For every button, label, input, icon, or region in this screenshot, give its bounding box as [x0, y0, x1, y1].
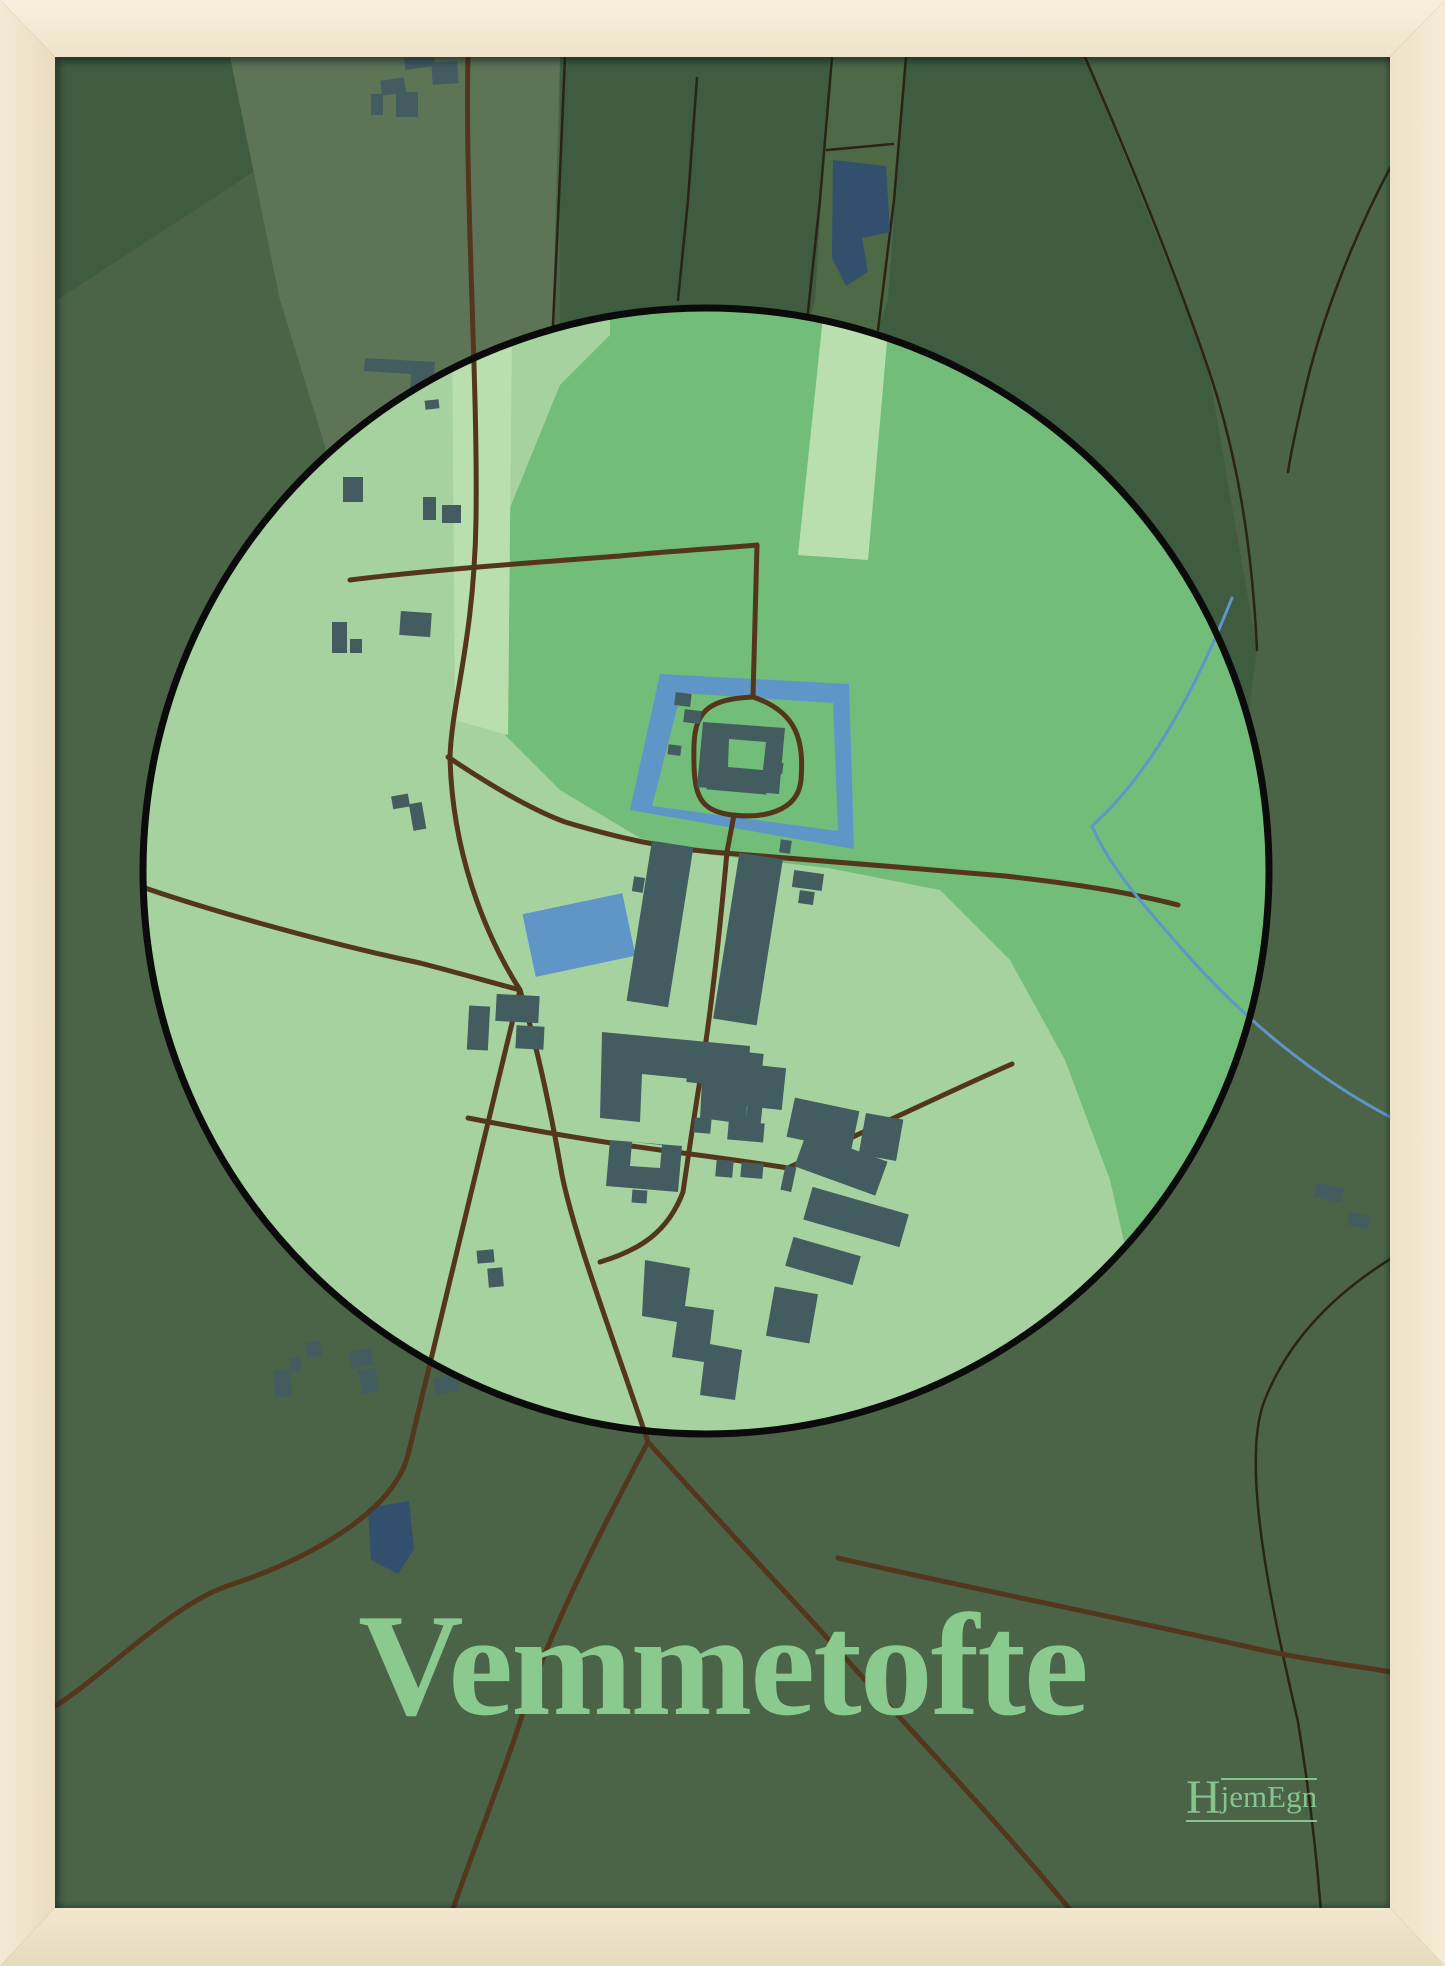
picture-frame-edge: [0, 0, 1445, 1966]
picture-frame-right: [1390, 0, 1445, 1966]
picture-frame-top: [0, 0, 1445, 57]
picture-frame-left: [0, 0, 55, 1966]
picture-frame-bottom: [0, 1908, 1445, 1966]
framed-map-poster: Vemmetofte HjemEgn: [0, 0, 1445, 1966]
